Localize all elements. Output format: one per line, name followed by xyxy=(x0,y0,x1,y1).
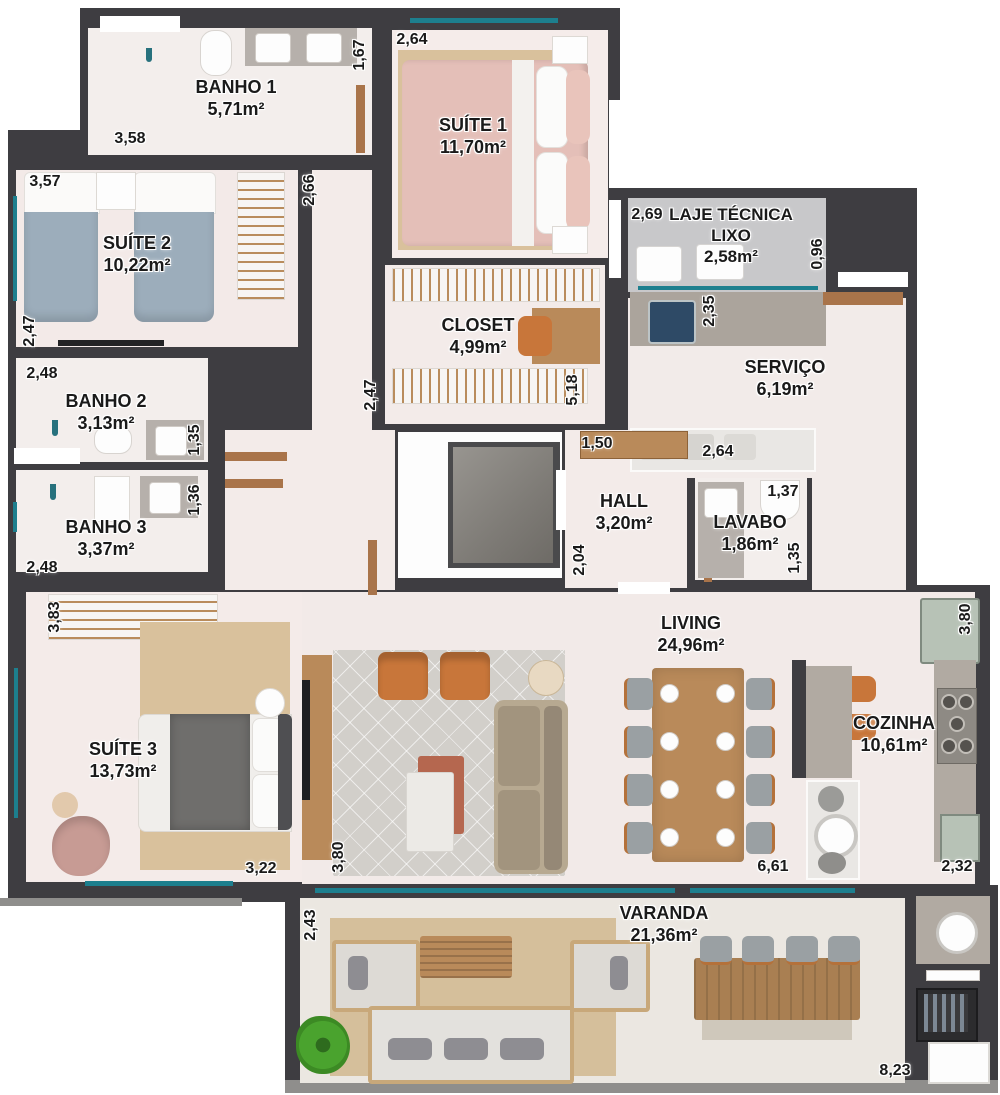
sliding-door-glass xyxy=(315,888,675,893)
room-label-laje-tecnica: LAJE TÉCNICA LIXO 2,58m² xyxy=(669,204,793,267)
place-setting xyxy=(660,828,679,847)
room-name: BANHO 1 xyxy=(195,76,276,98)
dining-chair xyxy=(624,774,653,806)
outdoor-pillow xyxy=(500,1038,544,1060)
room-name: COZINHA xyxy=(853,712,935,734)
outdoor-chair xyxy=(786,936,818,965)
room-label-lavabo: LAVABO 1,86m² xyxy=(713,511,786,555)
wall-shelf xyxy=(823,292,903,305)
dimension-label: 1,36 xyxy=(186,484,204,515)
toilet-icon xyxy=(200,30,232,76)
bed-pillow xyxy=(536,66,568,148)
room-label-suite2: SUÍTE 2 10,22m² xyxy=(103,232,171,276)
room-name: VARANDA xyxy=(620,902,709,924)
side-table xyxy=(528,660,564,696)
dimension-label: 1,35 xyxy=(186,424,204,455)
place-setting xyxy=(660,780,679,799)
nightstand xyxy=(552,226,588,254)
dimension-label: 2,43 xyxy=(302,909,320,940)
dimension-label: 2,35 xyxy=(701,295,719,326)
window-opening xyxy=(609,100,621,188)
sink-basin xyxy=(155,426,187,456)
coffee-table xyxy=(406,772,454,852)
corridor-servico xyxy=(812,478,906,590)
room-label-suite3: SUÍTE 3 13,73m² xyxy=(89,738,157,782)
floor-plan: BANHO 1 5,71m² SUÍTE 1 11,70m² SUÍTE 2 1… xyxy=(0,0,1000,1095)
bed-duvet xyxy=(170,714,250,830)
sink-basin xyxy=(149,482,181,514)
sink-basin xyxy=(255,33,291,63)
outdoor-armchair xyxy=(332,940,420,1012)
sofa-seat xyxy=(498,790,540,870)
armchair xyxy=(440,652,490,700)
outdoor-bench xyxy=(702,1020,852,1040)
dimension-label: 0,96 xyxy=(809,238,827,269)
room-label-living: LIVING 24,96m² xyxy=(657,612,724,656)
kitchen-island xyxy=(806,666,852,778)
room-area: 10,61m² xyxy=(853,734,935,756)
place-setting xyxy=(660,732,679,751)
dimension-label: 2,47 xyxy=(362,379,380,410)
place-setting xyxy=(660,684,679,703)
dimension-label: 3,57 xyxy=(29,173,60,191)
bed-suite-2 xyxy=(134,172,216,214)
bed-sheet xyxy=(512,60,534,246)
room-name: SUÍTE 2 xyxy=(103,232,171,254)
dimension-label: 3,22 xyxy=(245,860,276,878)
door-suite-3 xyxy=(368,540,377,595)
side-table xyxy=(255,688,285,718)
concrete-edge xyxy=(0,898,242,906)
room-label-servico: SERVIÇO 6,19m² xyxy=(745,356,826,400)
room-area: 13,73m² xyxy=(89,760,157,782)
bed-suite-2 xyxy=(24,212,98,322)
desk-chair xyxy=(518,316,552,356)
kitchen-sink-basin xyxy=(814,814,858,858)
armchair xyxy=(52,816,110,876)
window-glass xyxy=(410,18,558,23)
armchair xyxy=(378,652,428,700)
nightstand xyxy=(552,36,588,64)
window-glass xyxy=(85,881,233,886)
dimension-label: 2,48 xyxy=(26,559,57,577)
stove-burner xyxy=(941,694,957,710)
door-suite-1 xyxy=(356,85,365,153)
window-glass xyxy=(14,668,18,818)
shower-head-icon xyxy=(146,48,152,62)
dimension-label: 1,37 xyxy=(767,483,798,501)
dining-chair xyxy=(746,774,775,806)
dimension-label: 1,35 xyxy=(786,542,804,573)
dining-chair xyxy=(624,726,653,758)
room-name: HALL xyxy=(595,490,652,512)
window-glass xyxy=(638,286,818,290)
stove-burner xyxy=(958,738,974,754)
bbq-sink xyxy=(936,912,978,954)
bar-stool xyxy=(852,676,876,702)
bed-pillow xyxy=(536,152,568,234)
tv-screen xyxy=(302,680,310,800)
dimension-label: 2,48 xyxy=(26,365,57,383)
room-name: LIVING xyxy=(657,612,724,634)
room-label-varanda: VARANDA 21,36m² xyxy=(620,902,709,946)
sliding-door-glass xyxy=(690,888,855,893)
room-name: CLOSET xyxy=(441,314,514,336)
room-label-hall: HALL 3,20m² xyxy=(595,490,652,534)
closet-rack xyxy=(392,368,588,404)
dimension-label: 2,64 xyxy=(702,443,733,461)
door-banho-2 xyxy=(225,452,287,461)
room-name: SUÍTE 3 xyxy=(89,738,157,760)
room-name: SUÍTE 1 xyxy=(439,114,507,136)
dimension-label: 5,18 xyxy=(564,374,582,405)
room-area: 3,37m² xyxy=(65,538,146,560)
dimension-label: 8,23 xyxy=(879,1062,910,1080)
stove-burner xyxy=(949,716,965,732)
room-name: SERVIÇO xyxy=(745,356,826,378)
dimension-label: 6,61 xyxy=(757,858,788,876)
outdoor-chair xyxy=(828,936,860,965)
room-label-suite1: SUÍTE 1 11,70m² xyxy=(439,114,507,158)
place-setting xyxy=(716,732,735,751)
bbq-grate xyxy=(924,994,968,1032)
faucet-icon xyxy=(818,786,844,812)
dimension-label: 1,50 xyxy=(581,435,612,453)
place-setting xyxy=(716,828,735,847)
window-glass xyxy=(13,502,17,532)
room-area: 4,99m² xyxy=(441,336,514,358)
place-setting xyxy=(716,684,735,703)
plant-icon xyxy=(296,1016,350,1074)
washing-machine xyxy=(648,300,696,344)
side-table xyxy=(52,792,78,818)
window-opening xyxy=(100,16,180,32)
room-label-banho3: BANHO 3 3,37m² xyxy=(65,516,146,560)
room-name: BANHO 3 xyxy=(65,516,146,538)
outdoor-pillow xyxy=(444,1038,488,1060)
nightstand xyxy=(96,172,136,210)
kitchen-cabinet xyxy=(940,814,980,862)
shower-head-icon xyxy=(52,420,58,436)
room-area: 3,13m² xyxy=(65,412,146,434)
room-area: 24,96m² xyxy=(657,634,724,656)
door-opening xyxy=(618,582,670,594)
room-area: 3,20m² xyxy=(595,512,652,534)
room-name: LAVABO xyxy=(713,511,786,533)
dimension-label: 2,69 xyxy=(631,206,662,224)
wall-stub xyxy=(792,660,806,778)
window-opening xyxy=(14,448,80,464)
room-area: 11,70m² xyxy=(439,136,507,158)
room-area: 21,36m² xyxy=(620,924,709,946)
room-area: 6,19m² xyxy=(745,378,826,400)
place-setting xyxy=(716,780,735,799)
bbq-cabinet xyxy=(928,1042,990,1084)
room-area: 10,22m² xyxy=(103,254,171,276)
outdoor-pillow xyxy=(610,956,628,990)
elevator-cab xyxy=(453,447,553,563)
room-label-banho2: BANHO 2 3,13m² xyxy=(65,390,146,434)
room-area: 2,58m² xyxy=(669,246,793,267)
room-name: LAJE TÉCNICA xyxy=(669,204,793,225)
dimension-label: 2,66 xyxy=(301,174,319,205)
elevator-door-opening xyxy=(556,470,566,530)
sink-basin xyxy=(306,33,342,63)
outdoor-pillow xyxy=(348,956,368,990)
sofa-seat xyxy=(498,706,540,786)
door-banho-3 xyxy=(225,479,283,488)
dimension-label: 2,32 xyxy=(941,858,972,876)
room-label-banho1: BANHO 1 5,71m² xyxy=(195,76,276,120)
dimension-label: 3,80 xyxy=(330,841,348,872)
room-label-cozinha: COZINHA 10,61m² xyxy=(853,712,935,756)
dining-chair xyxy=(746,726,775,758)
towel-bar xyxy=(926,970,980,981)
outdoor-coffee-table xyxy=(420,936,512,978)
bed-headboard xyxy=(278,714,292,830)
window-opening xyxy=(609,200,621,278)
shower-head-icon xyxy=(50,484,56,500)
dimension-label: 2,64 xyxy=(396,31,427,49)
outdoor-dining-table xyxy=(694,958,860,1020)
dining-chair xyxy=(624,822,653,854)
outdoor-pillow xyxy=(388,1038,432,1060)
dimension-label: 3,83 xyxy=(46,601,64,632)
room-area: 1,86m² xyxy=(713,533,786,555)
bed-pillow xyxy=(566,70,590,144)
wardrobe-rack xyxy=(237,172,285,300)
stove-burner xyxy=(941,738,957,754)
tv-console xyxy=(58,340,164,346)
dining-chair xyxy=(746,822,775,854)
dimension-label: 3,80 xyxy=(957,603,975,634)
dining-chair xyxy=(624,678,653,710)
kitchen-sink-drain xyxy=(818,852,846,874)
room-name: LIXO xyxy=(669,225,793,246)
window-opening xyxy=(838,272,908,287)
room-label-closet: CLOSET 4,99m² xyxy=(441,314,514,358)
dimension-label: 2,47 xyxy=(21,315,39,346)
dining-chair xyxy=(746,678,775,710)
bed-pillow xyxy=(566,156,590,230)
room-name: BANHO 2 xyxy=(65,390,146,412)
outdoor-chair xyxy=(742,936,774,965)
room-area: 5,71m² xyxy=(195,98,276,120)
dimension-label: 1,67 xyxy=(351,39,369,70)
dimension-label: 2,04 xyxy=(571,544,589,575)
stove-burner xyxy=(958,694,974,710)
sofa-back xyxy=(544,706,562,870)
closet-rack xyxy=(392,268,600,302)
window-glass xyxy=(13,196,17,301)
dimension-label: 3,58 xyxy=(114,130,145,148)
